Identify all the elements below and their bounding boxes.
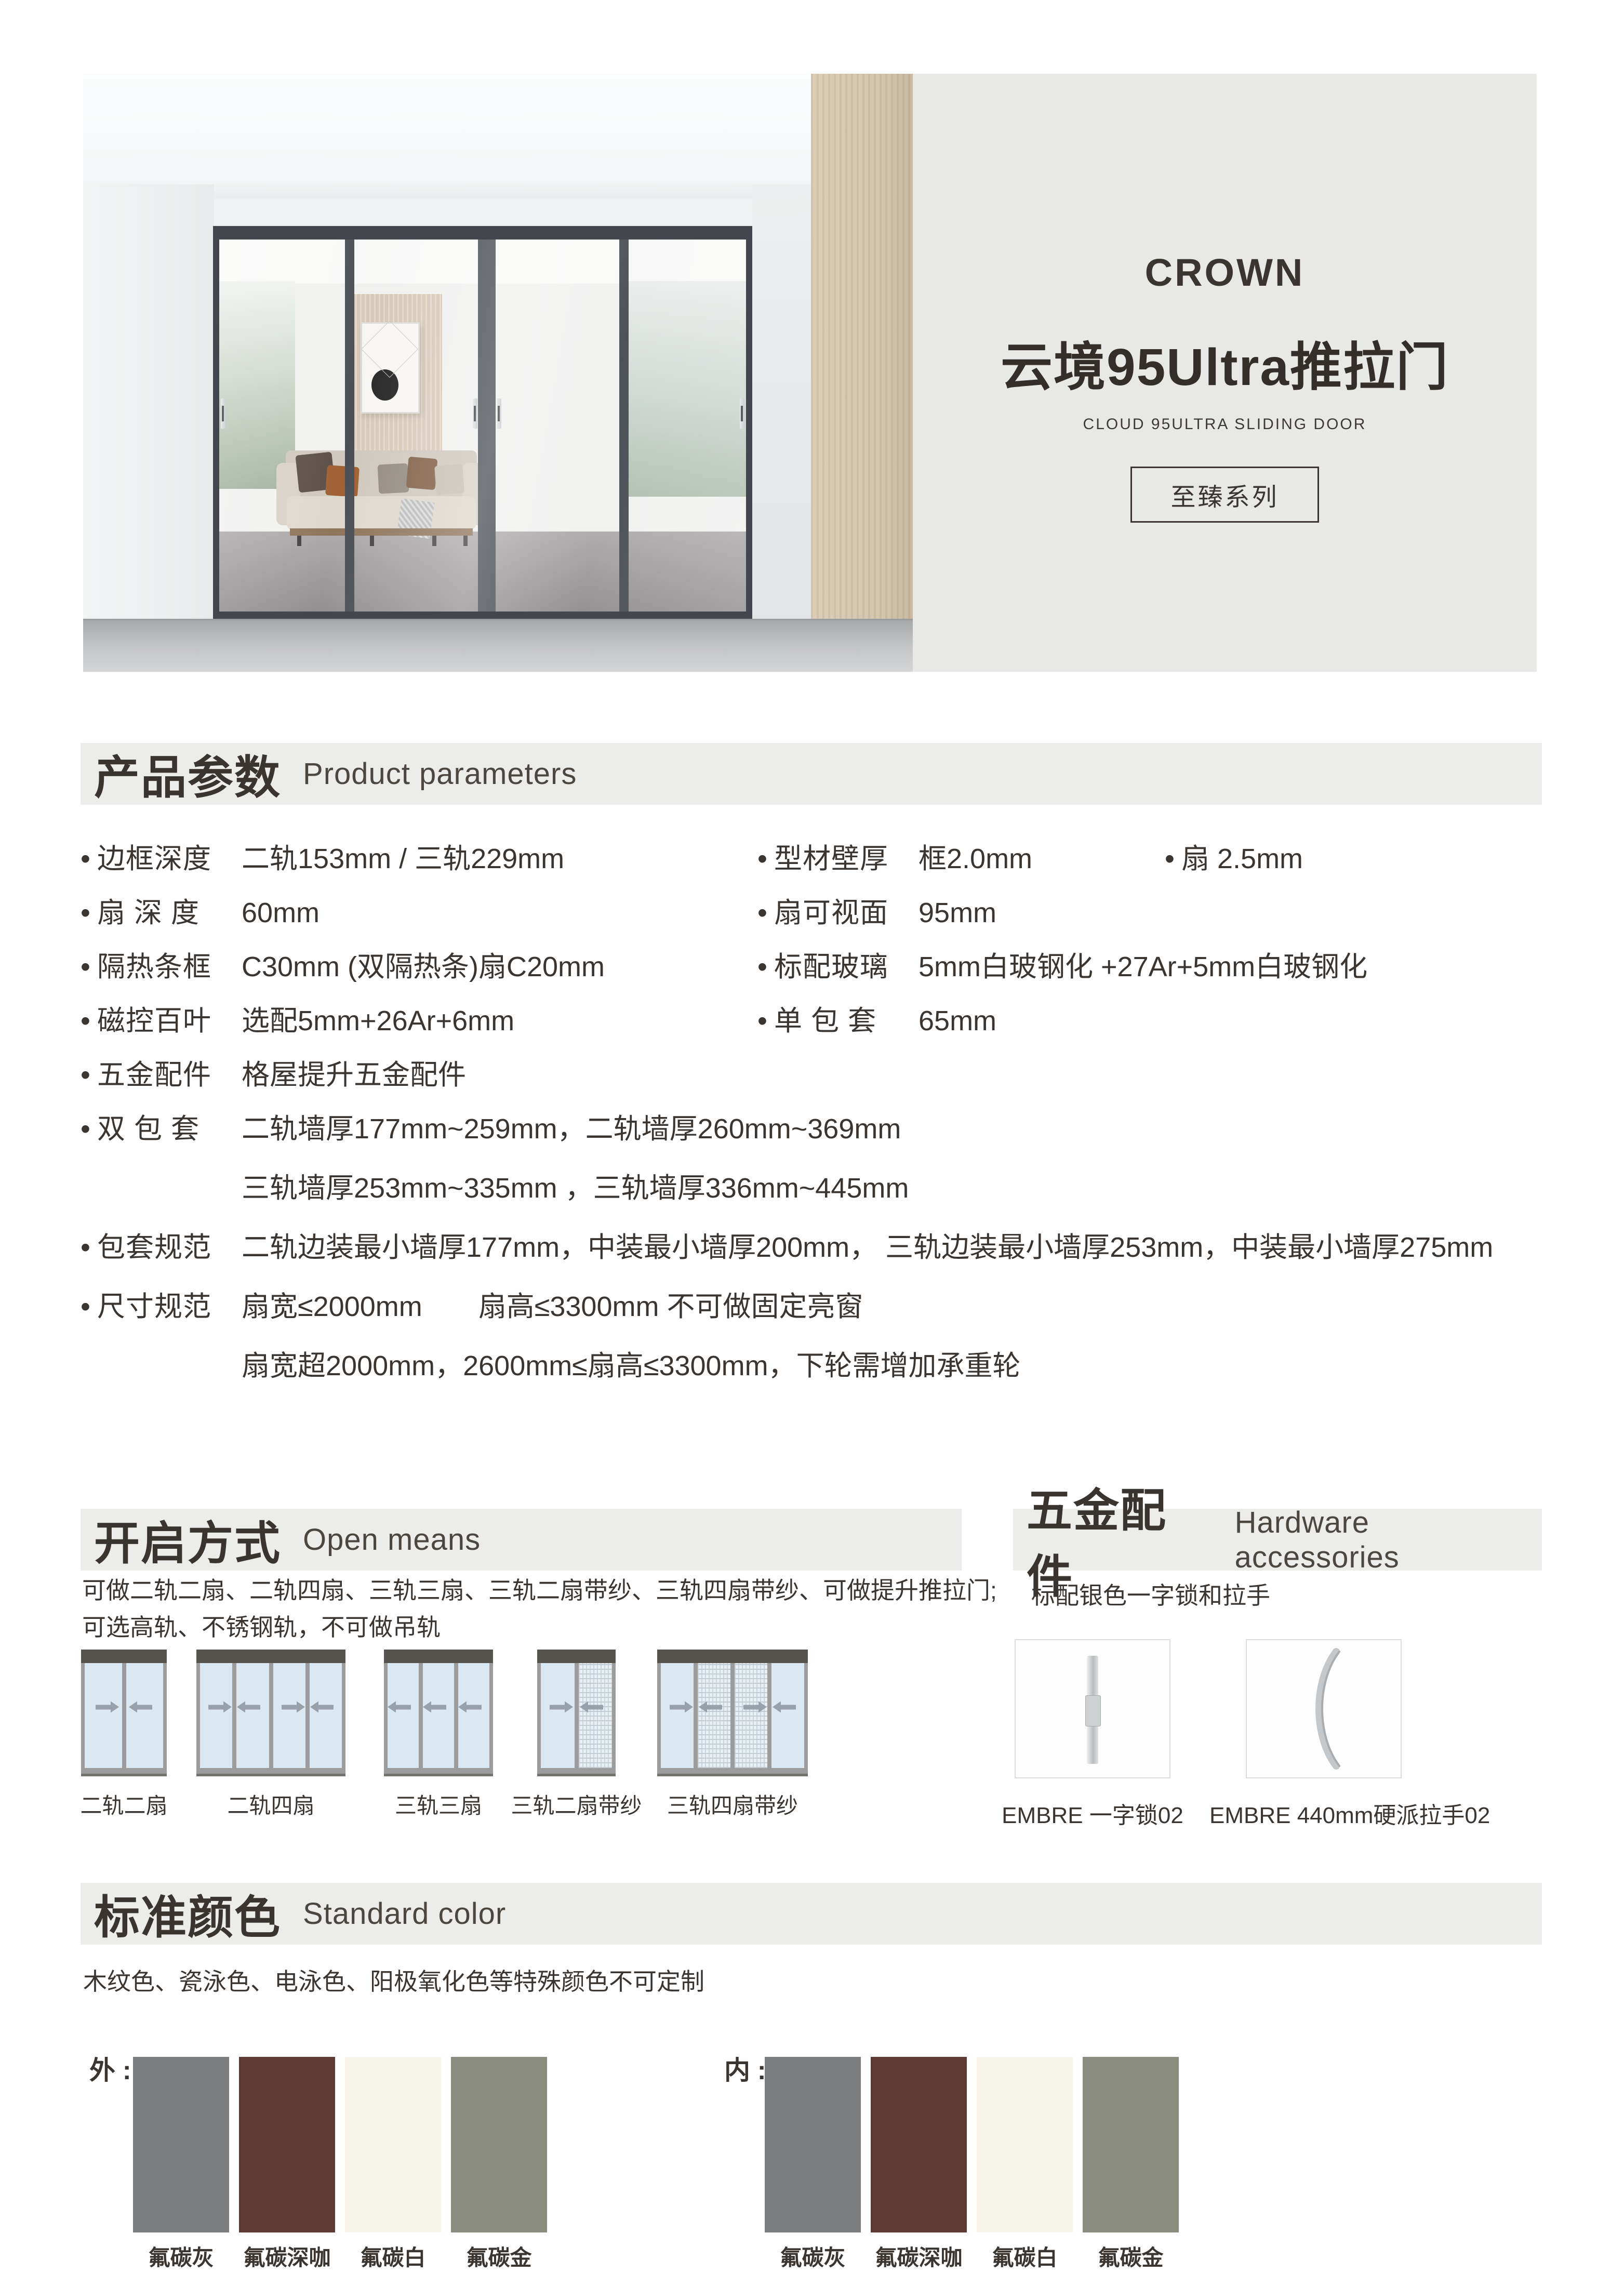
arrow-left-icon <box>245 1705 260 1709</box>
door-bottom-sill <box>537 1768 616 1776</box>
colors-banner: 标准颜色 Standard color <box>81 1883 1542 1945</box>
arrow-left-icon <box>707 1705 722 1709</box>
arrow-left-icon <box>137 1705 152 1709</box>
hardware-handle-label: EMBRE 440mm硬派拉手02 <box>1209 1797 1443 1830</box>
door-handle <box>221 398 225 429</box>
pillow <box>325 465 360 497</box>
door-panel <box>85 1663 122 1768</box>
door-top-track <box>81 1650 167 1663</box>
spec-row: • 双 包 套 二轨墙厚177mm~259mm，二轨墙厚260mm~369mm <box>81 1112 901 1146</box>
exterior-label: 外 : <box>89 2050 131 2087</box>
bullet-icon: • <box>1165 842 1181 876</box>
door-top-track <box>384 1650 493 1663</box>
pillow <box>406 457 437 490</box>
swatch-label: 氟碳白 <box>335 2240 451 2272</box>
door-stile <box>619 240 629 612</box>
series-badge: 至臻系列 <box>1130 467 1319 523</box>
diagram-label: 二轨四扇 <box>176 1788 366 1820</box>
spec-row: • 包套规范 二轨边装最小墙厚177mm，中装最小墙厚200mm， 三轨边装最小… <box>81 1230 1493 1265</box>
door-panel <box>310 1663 342 1768</box>
spec-row-continuation: 三轨墙厚253mm~335mm ，三轨墙厚336mm~445mm <box>242 1171 909 1205</box>
open-means-description-line2: 可选高轨、不锈钢轨，不可做吊轨 <box>82 1612 441 1642</box>
flat-lock-icon <box>1087 1656 1098 1764</box>
spec-row: • 尺寸规范 扇宽≤2000mm 扇高≤3300mm 不可做固定亮窗 <box>81 1290 863 1324</box>
swatch-label: 氟碳金 <box>1072 2240 1189 2272</box>
door-top-track <box>537 1650 616 1663</box>
spec-row: • 标配玻璃 5mm白玻钢化 +27Ar+5mm白玻钢化 <box>757 950 1367 984</box>
open-means-description-line1: 可做二轨二扇、二轨四扇、三轨三扇、三轨二扇带纱、三轨四扇带纱、可做提升推拉门; <box>82 1575 997 1605</box>
door-panel <box>236 1663 269 1768</box>
bullet-icon: • <box>81 950 97 984</box>
door-panel <box>423 1663 454 1768</box>
product-title: 云境95Ultra推拉门 <box>913 325 1537 400</box>
door-top-track <box>196 1650 345 1663</box>
interior-label: 内 : <box>724 2050 766 2087</box>
spec-row: • 边框深度 二轨153mm / 三轨229mm <box>81 842 564 876</box>
bullet-icon: • <box>81 896 97 930</box>
arrow-right-icon <box>550 1705 565 1709</box>
arrow-right-icon <box>208 1705 224 1709</box>
open-means-heading-zh: 开启方式 <box>94 1507 281 1573</box>
door-panel <box>126 1663 164 1768</box>
bullet-icon: • <box>81 1230 97 1265</box>
color-swatch-exterior <box>451 2057 547 2232</box>
bullet-icon: • <box>81 1290 97 1324</box>
bullet-icon: • <box>81 1004 97 1038</box>
door-panel-screen <box>579 1663 613 1768</box>
room-ceiling <box>83 74 811 198</box>
swatch-label: 氟碳灰 <box>123 2240 239 2272</box>
open-means-banner: 开启方式 Open means <box>81 1509 962 1571</box>
colors-heading-en: Standard color <box>303 1896 506 1931</box>
parameters-heading-en: Product parameters <box>303 756 577 791</box>
hero-section: CROWN 云境95Ultra推拉门 CLOUD 95ULTRA SLIDING… <box>83 74 1537 672</box>
door-handle <box>497 398 501 429</box>
parameters-banner: 产品参数 Product parameters <box>81 743 1542 805</box>
room-wall-right <box>752 184 811 619</box>
brand-logo: CROWN <box>913 250 1537 295</box>
arrow-left-icon <box>318 1705 334 1709</box>
diagram-3track-4panel-screen <box>657 1650 808 1776</box>
room-wall-left <box>83 184 214 619</box>
diagram-2track-2panel <box>81 1650 167 1776</box>
door-bottom-sill <box>657 1768 808 1776</box>
arrow-right-icon <box>96 1705 111 1709</box>
door-panel <box>388 1663 419 1768</box>
hardware-banner: 五金配件 Hardware accessories <box>1013 1509 1542 1571</box>
color-swatch-interior <box>765 2057 861 2232</box>
hardware-lock-image <box>1015 1639 1170 1778</box>
swatch-label: 氟碳灰 <box>754 2240 871 2272</box>
spec-row: • 磁控百叶 选配5mm+26Ar+6mm <box>81 1004 514 1038</box>
spec-row: • 扇 深 度 60mm <box>81 896 320 930</box>
hero-title-panel: CROWN 云境95Ultra推拉门 CLOUD 95ULTRA SLIDING… <box>913 74 1537 672</box>
curved-handle-icon <box>1247 1640 1401 1777</box>
swatch-label: 氟碳金 <box>441 2240 557 2272</box>
door-handle <box>740 398 744 429</box>
bullet-icon: • <box>81 1058 97 1092</box>
door-panel <box>541 1663 575 1768</box>
door-stile <box>345 240 354 612</box>
door-glass-scene <box>219 240 746 612</box>
color-swatch-interior <box>977 2057 1073 2232</box>
colors-heading-zh: 标准颜色 <box>94 1881 281 1947</box>
bullet-icon: • <box>81 1112 97 1146</box>
door-panel <box>273 1663 305 1768</box>
hardware-heading-en: Hardware accessories <box>1235 1505 1542 1575</box>
spec-row: • 型材壁厚 框2.0mm • 扇 2.5mm <box>757 842 1032 876</box>
swatch-label: 氟碳深咖 <box>860 2240 977 2272</box>
spec-row-continuation: 扇宽超2000mm，2600mm≤扇高≤3300mm，下轮需增加承重轮 <box>242 1349 1021 1383</box>
diagram-3track-2panel-screen <box>537 1650 616 1776</box>
bullet-icon: • <box>757 896 774 930</box>
arrow-left-icon <box>780 1705 796 1709</box>
interior-window-right <box>619 281 746 497</box>
diagram-2track-4panel <box>196 1650 345 1776</box>
open-means-heading-en: Open means <box>303 1522 481 1557</box>
color-swatch-interior <box>871 2057 967 2232</box>
arrow-left-icon <box>588 1705 603 1709</box>
door-bottom-sill <box>196 1768 345 1776</box>
arrow-right-icon <box>743 1705 759 1709</box>
door-panel <box>200 1663 232 1768</box>
diagram-label: 二轨二扇 <box>60 1788 188 1820</box>
sliding-door-photo <box>213 226 752 619</box>
door-bottom-sill <box>384 1768 493 1776</box>
product-subtitle: CLOUD 95ULTRA SLIDING DOOR <box>913 416 1537 433</box>
pillow <box>378 463 409 494</box>
color-swatch-interior <box>1083 2057 1179 2232</box>
arrow-left-icon <box>431 1705 446 1709</box>
bullet-icon: • <box>757 1004 774 1038</box>
hardware-lock-label: EMBRE 一字锁02 <box>983 1797 1202 1830</box>
colors-note: 木纹色、瓷泳色、电泳色、阳极氧化色等特殊颜色不可定制 <box>83 1963 704 1997</box>
door-panel <box>771 1663 804 1768</box>
door-panel-screen <box>735 1663 767 1768</box>
diagram-label: 三轨四扇带纱 <box>636 1788 829 1820</box>
pillow <box>434 464 464 495</box>
wall-art-frame <box>361 322 420 414</box>
door-stile <box>478 240 496 612</box>
wood-panel-wall <box>811 74 913 619</box>
diagram-label: 三轨三扇 <box>363 1788 514 1820</box>
sofa <box>276 450 486 549</box>
spec-row: • 单 包 套 65mm <box>757 1004 996 1038</box>
door-panel-screen <box>698 1663 730 1768</box>
hardware-note: 标配银色一字锁和拉手 <box>1031 1577 1270 1611</box>
swatch-label: 氟碳深咖 <box>229 2240 345 2272</box>
spec-row: • 隔热条框 C30mm (双隔热条)扇C20mm <box>81 950 605 984</box>
bullet-icon: • <box>757 950 774 984</box>
door-panel <box>661 1663 694 1768</box>
door-bottom-sill <box>81 1768 167 1776</box>
diagram-3track-3panel <box>384 1650 493 1776</box>
door-top-track <box>657 1650 808 1663</box>
parameters-heading-zh: 产品参数 <box>94 741 281 807</box>
arrow-right-icon <box>282 1705 297 1709</box>
hero-room-photo <box>83 74 913 672</box>
bullet-icon: • <box>757 842 774 876</box>
bullet-icon: • <box>81 842 97 876</box>
arrow-right-icon <box>670 1705 685 1709</box>
swatch-label: 氟碳白 <box>966 2240 1083 2272</box>
spec-row: • 五金配件 格屋提升五金配件 <box>81 1058 466 1092</box>
spec-row: • 扇可视面 95mm <box>757 896 996 930</box>
product-sheet: CROWN 云境95Ultra推拉门 CLOUD 95ULTRA SLIDING… <box>0 0 1624 2273</box>
color-swatch-exterior <box>345 2057 441 2232</box>
door-panel <box>458 1663 489 1768</box>
door-handle <box>473 398 477 429</box>
color-swatch-exterior <box>239 2057 335 2232</box>
arrow-left-icon <box>466 1705 482 1709</box>
arrow-left-icon <box>395 1705 411 1709</box>
hardware-handle-image <box>1246 1639 1402 1778</box>
diagram-label: 三轨二扇带纱 <box>506 1788 647 1820</box>
room-floor <box>83 619 913 672</box>
color-swatch-exterior <box>133 2057 229 2232</box>
